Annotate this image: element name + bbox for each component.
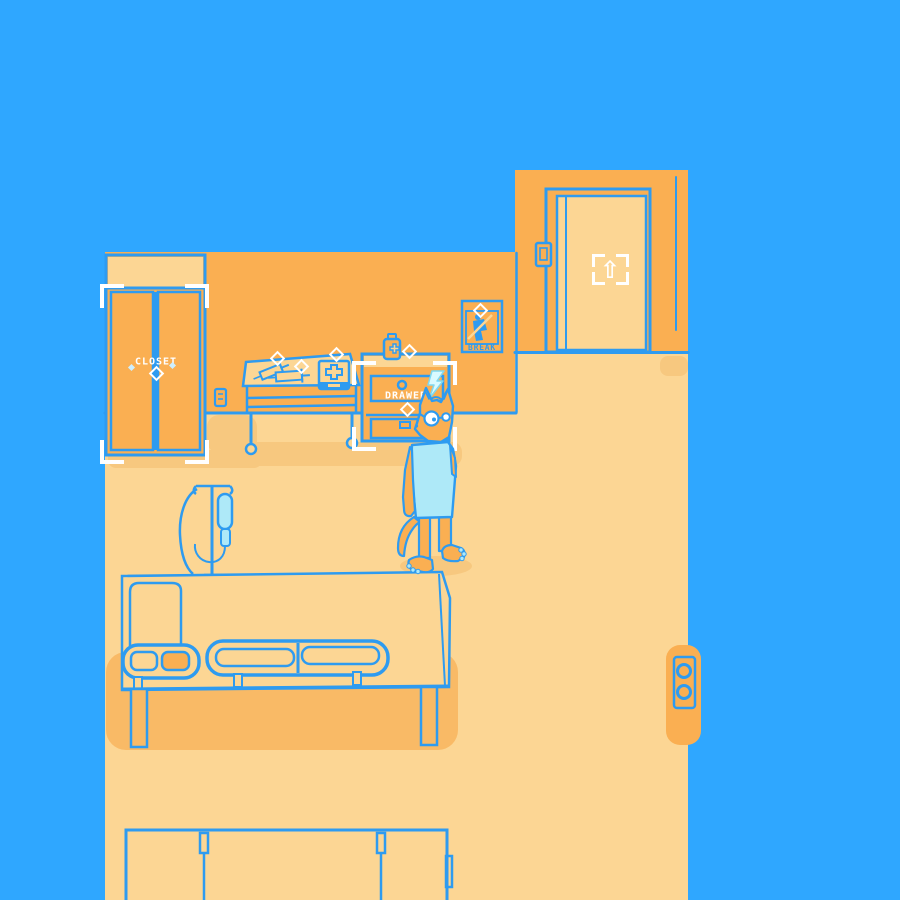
game-scene: CLOSET DRAWER BREAK ⇧ — [0, 0, 900, 900]
claw — [416, 569, 420, 573]
hospital-gown — [411, 442, 456, 518]
tail — [398, 517, 420, 556]
claw — [462, 552, 466, 556]
claw — [459, 548, 463, 552]
claw — [460, 556, 464, 560]
leg — [419, 516, 430, 558]
claw — [407, 564, 411, 568]
player-character — [398, 371, 466, 574]
nose — [415, 424, 418, 427]
eye — [432, 418, 436, 422]
hair-line — [431, 397, 441, 399]
arm — [403, 447, 415, 516]
player-art — [0, 0, 900, 900]
glasses-lens — [425, 412, 439, 426]
claw — [411, 568, 415, 572]
